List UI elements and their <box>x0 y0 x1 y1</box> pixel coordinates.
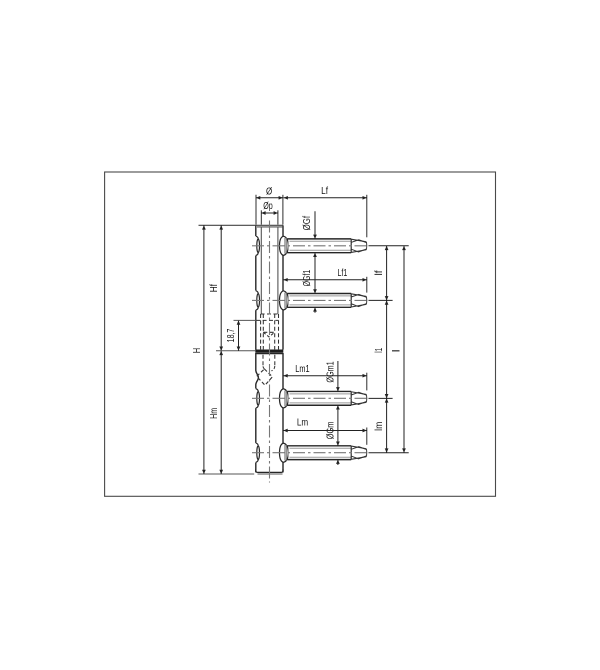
svg-text:Lm: Lm <box>297 418 308 429</box>
svg-text:H: H <box>192 348 203 353</box>
svg-text:Lf: Lf <box>321 186 328 197</box>
svg-text:l1: l1 <box>374 348 385 353</box>
svg-text:ØGf1: ØGf1 <box>302 270 313 287</box>
svg-text:Øp: Øp <box>263 201 273 212</box>
svg-text:Hm: Hm <box>209 408 220 419</box>
svg-text:Lm1: Lm1 <box>295 364 309 375</box>
svg-text:lf: lf <box>374 270 385 275</box>
svg-text:Hf: Hf <box>209 284 220 292</box>
svg-text:lm: lm <box>374 422 385 431</box>
svg-text:ØGf: ØGf <box>302 216 313 231</box>
svg-text:18,7: 18,7 <box>226 329 237 343</box>
svg-text:ØGm1: ØGm1 <box>326 361 337 382</box>
svg-text:l: l <box>391 350 402 353</box>
svg-text:Ø: Ø <box>266 187 273 198</box>
svg-text:Lf1: Lf1 <box>337 268 347 279</box>
